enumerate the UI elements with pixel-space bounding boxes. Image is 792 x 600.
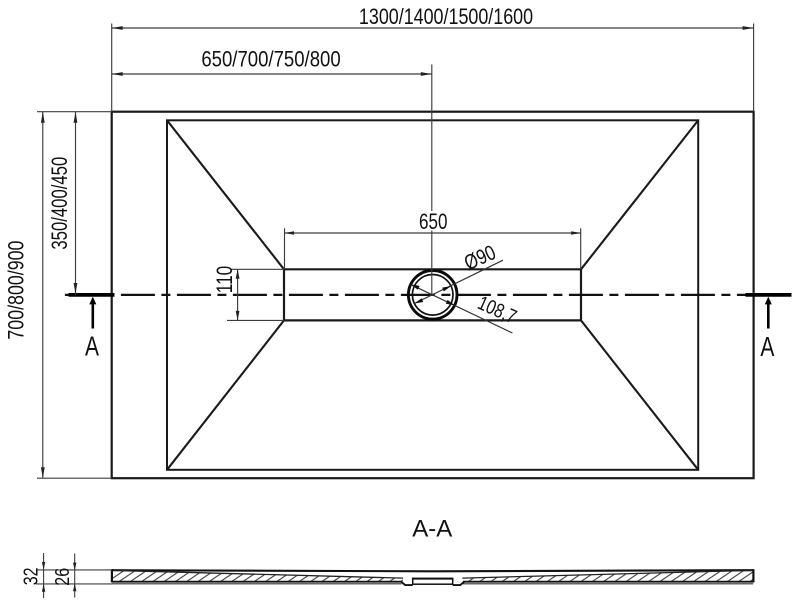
svg-text:32: 32: [19, 568, 42, 586]
svg-text:350/400/450: 350/400/450: [48, 157, 73, 250]
svg-text:1300/1400/1500/1600: 1300/1400/1500/1600: [359, 6, 533, 30]
svg-text:700/800/900: 700/800/900: [5, 241, 29, 340]
svg-text:650: 650: [419, 210, 447, 235]
svg-text:A: A: [85, 332, 99, 363]
svg-text:26: 26: [50, 568, 73, 586]
svg-text:A-A: A-A: [412, 516, 452, 543]
svg-text:650/700/750/800: 650/700/750/800: [201, 48, 340, 72]
svg-text:A: A: [760, 332, 774, 363]
svg-text:110: 110: [213, 266, 238, 293]
